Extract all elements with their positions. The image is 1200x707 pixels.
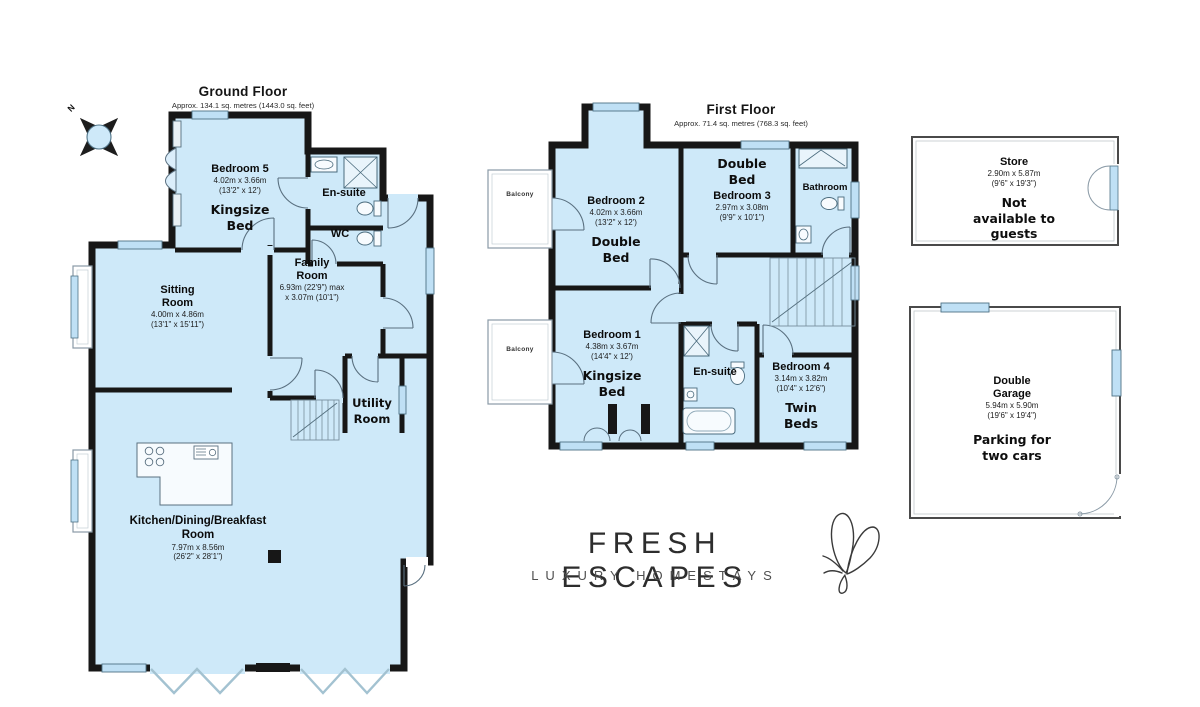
store-door-leaf — [1110, 166, 1118, 210]
ff-bedroom1-label: Bedroom 1 4.38m x 3.67m (14'4" x 12') Ki… — [552, 329, 672, 399]
floor-subtitle: Approx. 71.4 sq. metres (768.3 sq. feet) — [641, 119, 841, 128]
logo-tagline: LUXURY HOMESTAYS — [495, 568, 815, 583]
gf-ensuite-label: En-suite — [304, 187, 384, 200]
garage-window-right — [1112, 350, 1121, 396]
bed-note: Double Bed — [712, 156, 772, 187]
store-note: Not available to guests — [933, 195, 1095, 242]
wc-toilet-icon — [374, 231, 381, 246]
ff-bathroom-label: Bathroom — [794, 182, 856, 193]
floor-subtitle: Approx. 134.1 sq. metres (1443.0 sq. fee… — [143, 101, 343, 110]
garage-note: Parking for two cars — [931, 432, 1093, 463]
gf-kitchen-label: Kitchen/Dining/Breakfast Room 7.97m x 8.… — [104, 515, 292, 561]
first-floor-title: First Floor Approx. 71.4 sq. metres (768… — [641, 102, 841, 128]
ff-bedroom3-note: Double Bed — [712, 156, 772, 187]
ff-bedroom4-label: Bedroom 4 3.14m x 3.82m (10'4" x 12'6") … — [748, 361, 854, 431]
store-label: Store 2.90m x 5.87m (9'6" x 19'3") Not a… — [933, 156, 1095, 242]
gf-wc-label: WC — [314, 228, 366, 241]
compass-icon — [75, 113, 122, 160]
floor-title: Ground Floor — [143, 84, 343, 99]
basin-icon — [684, 388, 697, 401]
bay-window-kitchen — [71, 450, 92, 532]
basin-icon — [796, 226, 811, 243]
sink-icon — [194, 446, 218, 459]
ff-balcony-bottom-label: Balcony — [493, 346, 547, 353]
ff-bedroom3-label: Bedroom 3 2.97m x 3.08m (9'9" x 10'1") — [682, 190, 802, 222]
toilet-icon — [838, 197, 844, 210]
floorplan-page: N Ground Floor Approx. 134.1 sq. metres … — [0, 0, 1200, 707]
gf-family-room-label: Family Room 6.93m (22'9") max x 3.07m (1… — [258, 257, 366, 302]
bed-note: Double Bed — [556, 234, 676, 265]
ff-ensuite-label: En-suite — [682, 366, 748, 379]
ff-balcony-top-label: Balcony — [493, 191, 547, 198]
bed-note: Kingsize Bed — [180, 202, 300, 233]
gf-bedroom5-label: Bedroom 5 4.02m x 3.66m (13'2" x 12') Ki… — [180, 163, 300, 233]
toilet-icon — [374, 201, 381, 216]
logo-brand: FRESH ESCAPES — [495, 527, 815, 595]
butterfly-icon — [823, 513, 879, 593]
bed-note: Kingsize Bed — [552, 368, 672, 399]
shower-icon — [799, 149, 847, 168]
gf-utility-room-label: Utility Room — [342, 396, 402, 427]
balcony-top-outline — [488, 170, 552, 248]
ff-bedroom2-label: Bedroom 2 4.02m x 3.66m (13'2" x 12') Do… — [556, 195, 676, 265]
bed-note: Twin Beds — [748, 400, 854, 431]
garage-label: Double Garage 5.94m x 5.90m (19'6" x 19'… — [931, 375, 1093, 463]
gf-sitting-room-label: Sitting Room 4.00m x 4.86m (13'1" x 15'1… — [120, 284, 235, 329]
bathtub-icon — [683, 408, 735, 434]
balcony-bottom-outline — [488, 320, 552, 404]
floor-title: First Floor — [641, 102, 841, 117]
bay-window-sitting — [71, 266, 92, 348]
garage-window-top — [941, 303, 989, 312]
ground-floor-title: Ground Floor Approx. 134.1 sq. metres (1… — [143, 84, 343, 110]
